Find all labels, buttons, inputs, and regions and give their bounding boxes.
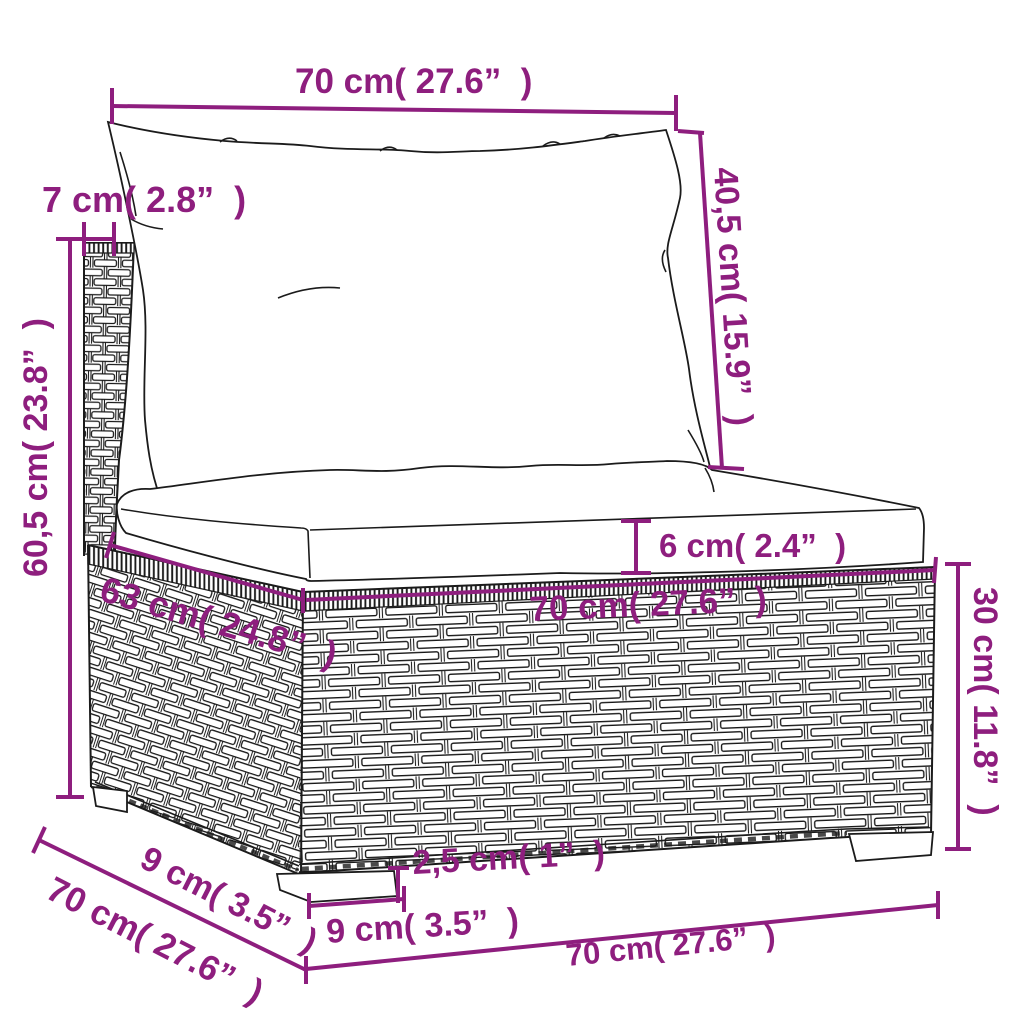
svg-text:70 cm( 27.6” ): 70 cm( 27.6” ): [295, 62, 532, 101]
svg-text:6 cm( 2.4” ): 6 cm( 2.4” ): [659, 527, 846, 564]
svg-text:60,5 cm( 23.8” ): 60,5 cm( 23.8” ): [17, 318, 55, 577]
svg-text:70 cm( 27.6” ): 70 cm( 27.6” ): [564, 918, 777, 973]
svg-text:30 cm( 11.8” ): 30 cm( 11.8” ): [966, 587, 1004, 816]
svg-text:7 cm( 2.8” ): 7 cm( 2.8” ): [42, 179, 246, 220]
svg-text:9 cm( 3.5” ): 9 cm( 3.5” ): [325, 901, 520, 951]
svg-text:40,5 cm( 15.9” ): 40,5 cm( 15.9” ): [706, 166, 760, 427]
